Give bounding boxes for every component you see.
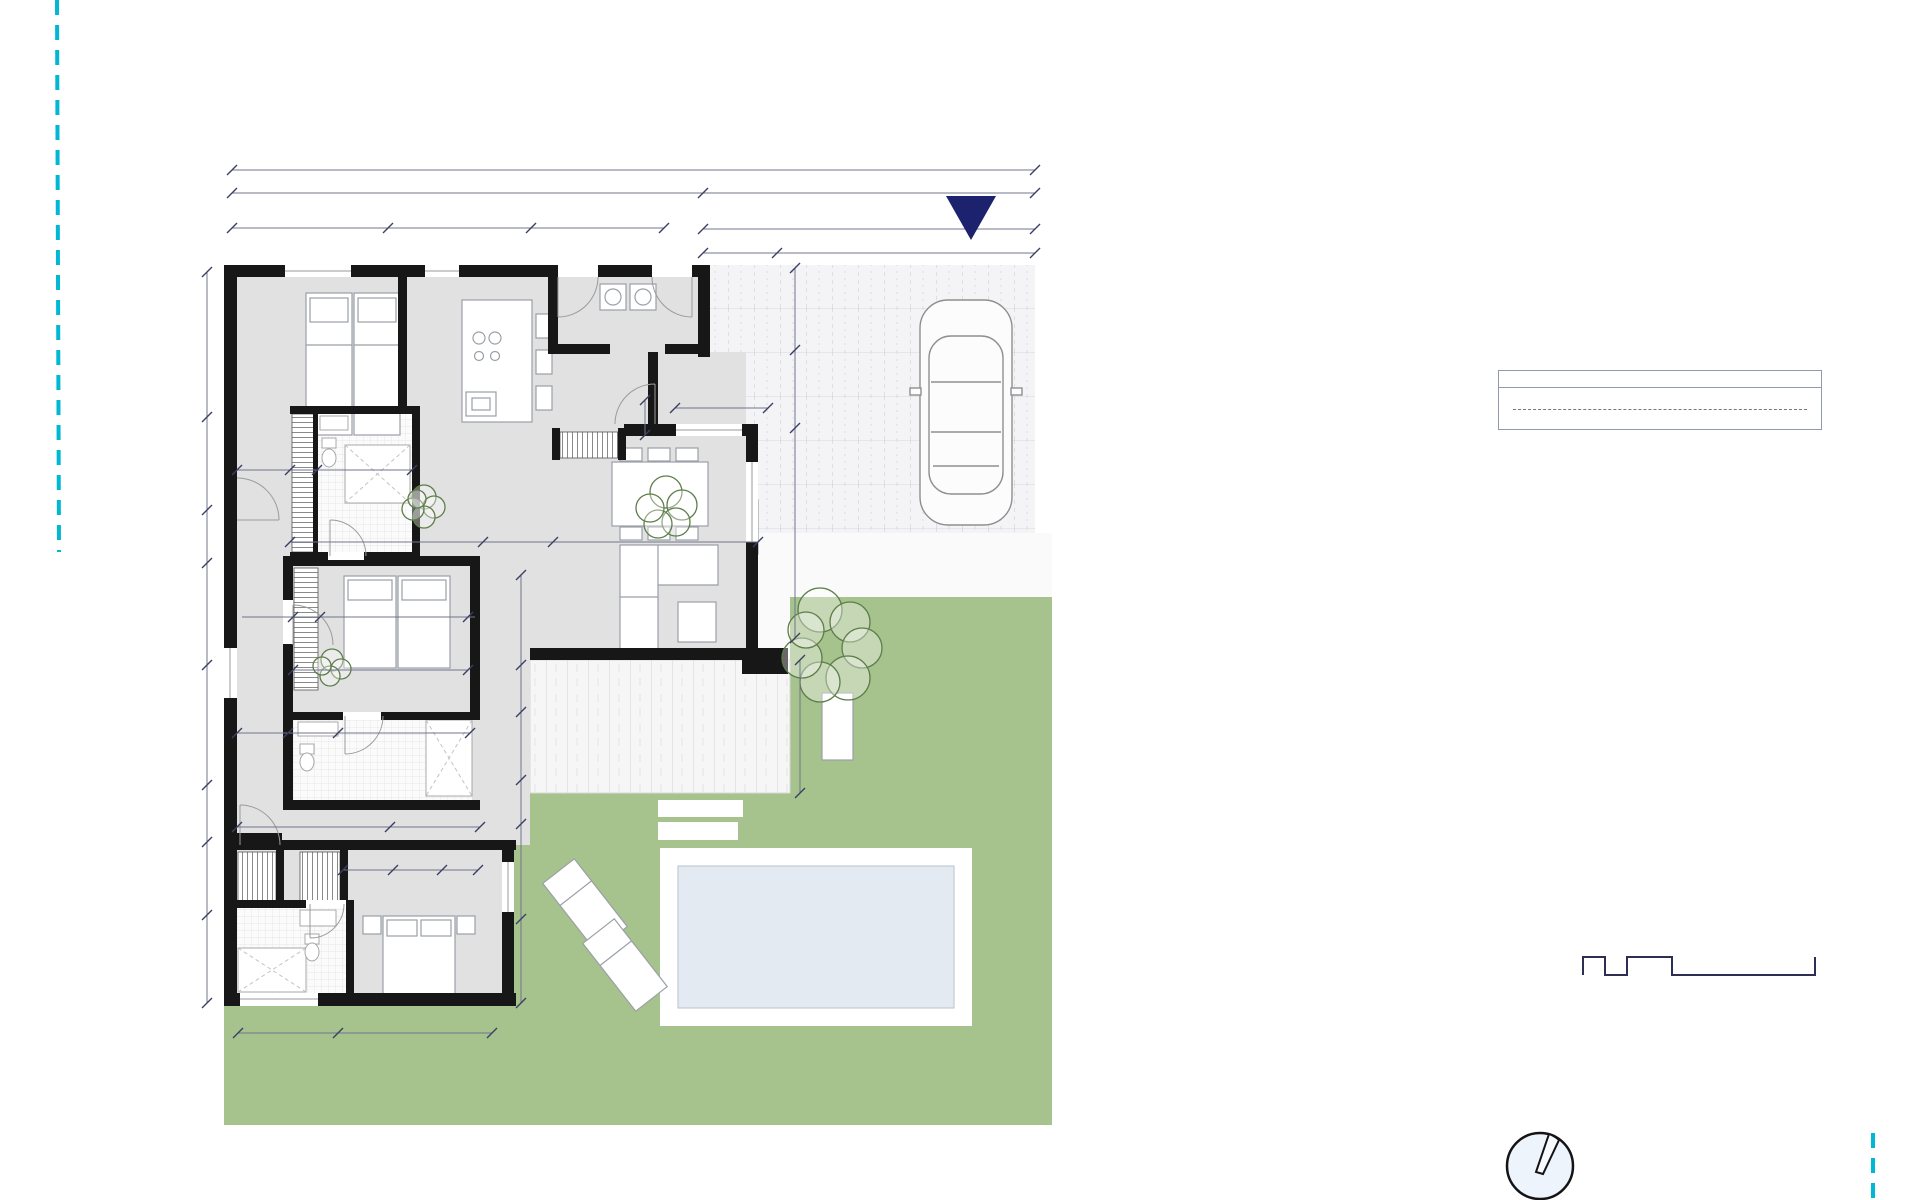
floor-plan-sheet [0,0,1920,1200]
surfaces-table-title [1499,371,1821,388]
terrace-deck [530,660,790,793]
compass-icon [1507,1133,1573,1199]
pool [660,848,972,1026]
table-divider [1513,409,1807,410]
access-arrow-icon [946,196,996,240]
surfaces-table [1498,370,1822,430]
car-top-view [910,300,1022,525]
floor-plan-drawing [0,0,1920,1200]
scale-bar [1583,957,1815,975]
